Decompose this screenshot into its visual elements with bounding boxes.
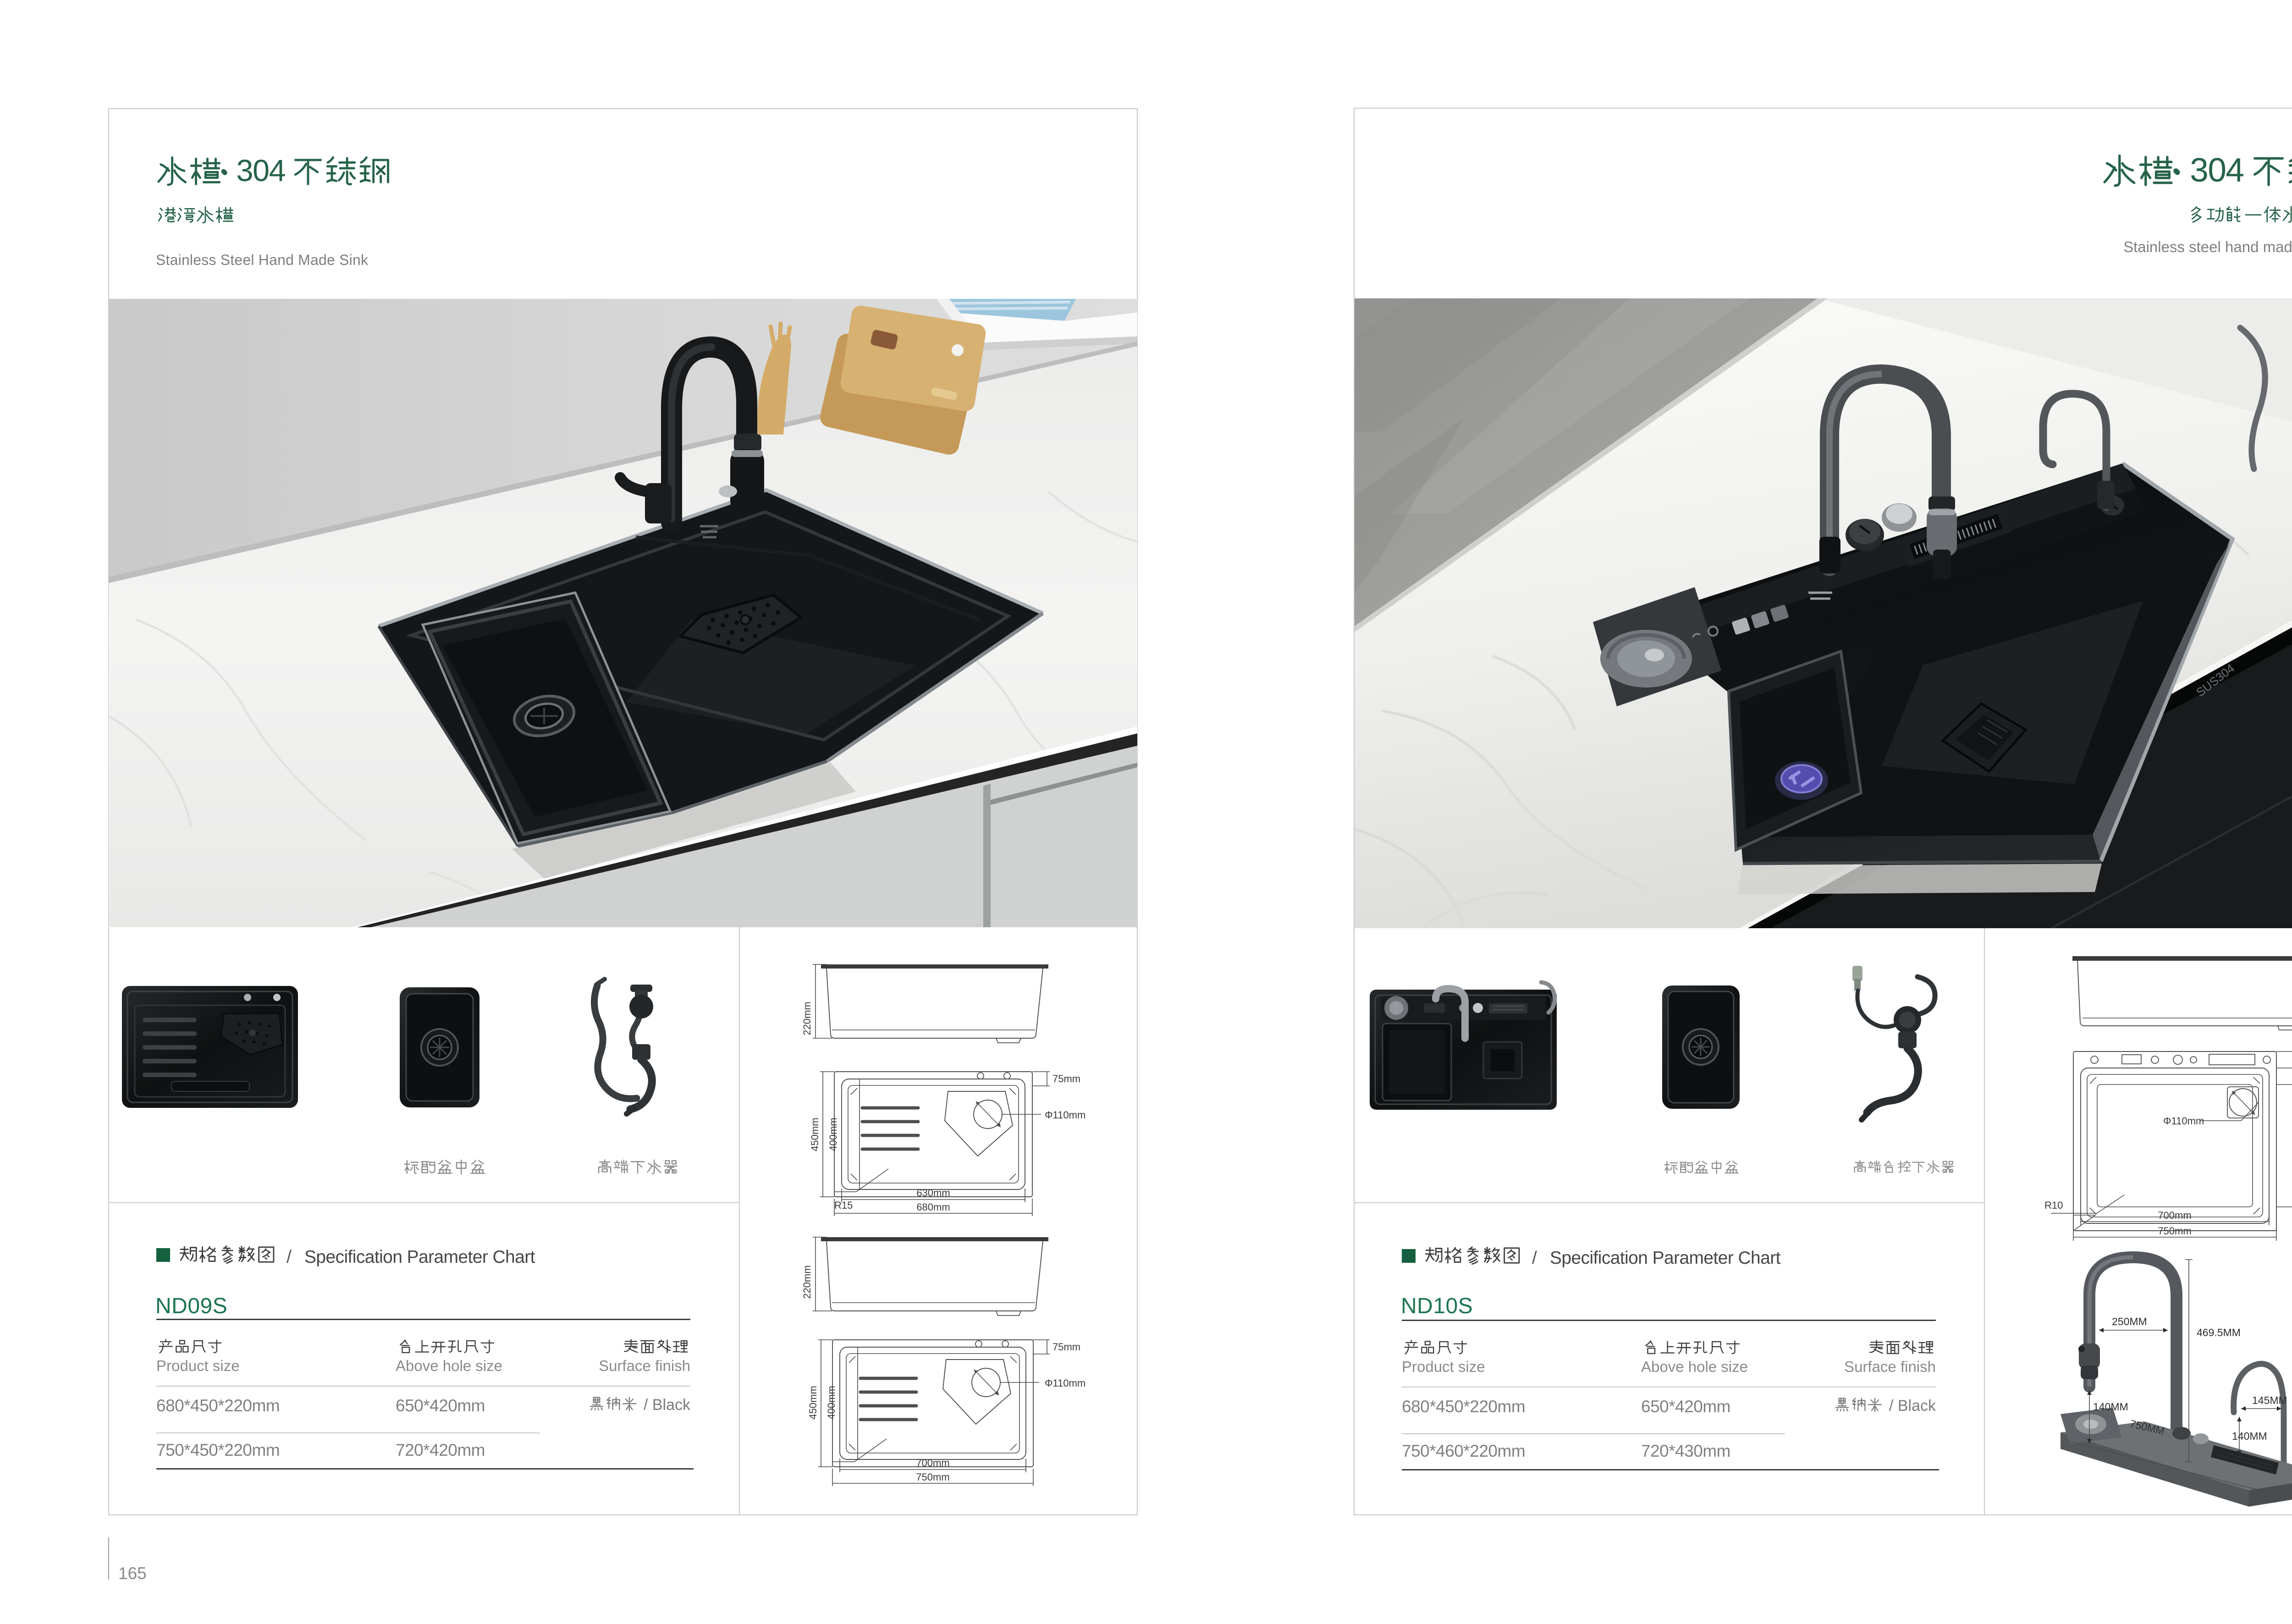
svg-text:750mm: 750mm [916,1471,949,1483]
svg-text:450mm: 450mm [809,1118,821,1151]
svg-text:R15: R15 [834,1200,853,1211]
svg-text:145MM: 145MM [2252,1394,2287,1406]
svg-text:75mm: 75mm [1052,1073,1080,1085]
svg-text:140MM: 140MM [2232,1430,2267,1442]
svg-text:400mm: 400mm [827,1118,839,1151]
svg-text:450mm: 450mm [807,1386,819,1419]
svg-text:R10: R10 [2044,1200,2063,1211]
svg-text:304: 304 [237,155,286,187]
svg-text:220mm: 220mm [801,1002,813,1035]
svg-text:630mm: 630mm [916,1187,950,1199]
svg-text:400mm: 400mm [826,1386,837,1419]
svg-text:Φ110mm: Φ110mm [1045,1109,1085,1121]
svg-text:250MM: 250MM [2112,1316,2147,1327]
svg-text:750mm: 750mm [2158,1225,2191,1237]
svg-text:469.5MM: 469.5MM [2197,1327,2241,1338]
svg-text:75mm: 75mm [1052,1341,1080,1353]
svg-text:304: 304 [2190,154,2243,188]
svg-text:140MM: 140MM [2093,1401,2128,1413]
svg-text:Φ110mm: Φ110mm [2163,1115,2204,1127]
svg-text:700mm: 700mm [2158,1210,2191,1221]
svg-text:220mm: 220mm [801,1265,813,1299]
svg-text:Φ110mm: Φ110mm [1045,1377,1085,1389]
svg-text:700mm: 700mm [916,1457,949,1469]
svg-text:680mm: 680mm [916,1201,950,1213]
